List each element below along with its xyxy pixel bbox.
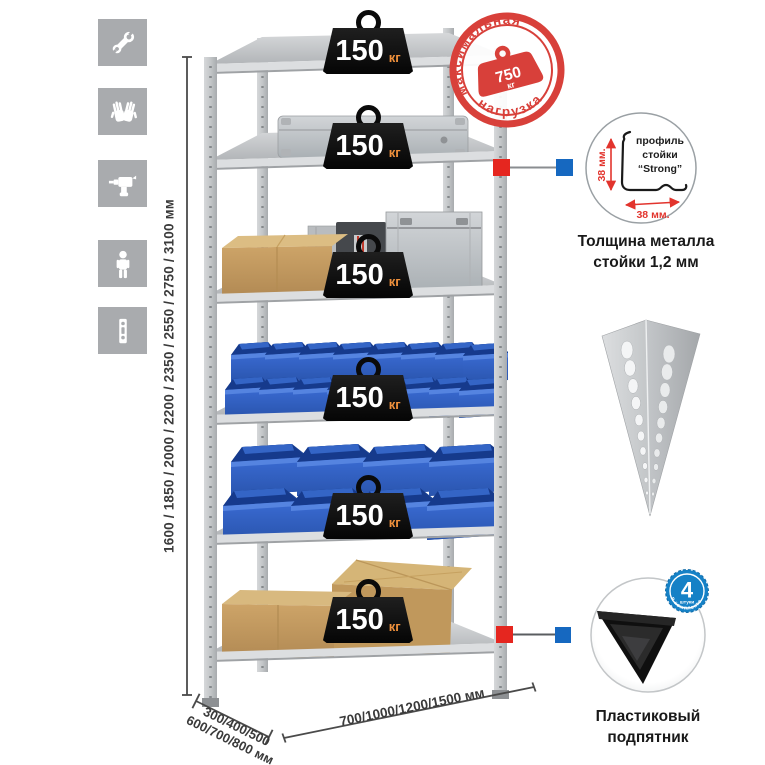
red-marker-square — [493, 159, 510, 176]
foot-caption-line1: Пластиковый — [596, 707, 701, 728]
load-value: 150 — [335, 502, 383, 531]
profile-dim-vertical: 38 мм. — [596, 148, 608, 181]
angle-post-image — [602, 320, 700, 516]
profile-label-line2: стойки — [636, 149, 684, 163]
load-value: 150 — [335, 261, 383, 290]
wrench-icon — [108, 28, 138, 58]
load-unit: кг — [389, 275, 401, 288]
profile-caption: Толщина металла стойки 1,2 мм — [578, 232, 715, 274]
shelf-load-badge: 150 кг — [323, 234, 413, 298]
load-value: 150 — [335, 132, 383, 161]
weight-body: 150 кг — [323, 252, 413, 298]
kit-count-badge: 4 штуки в комплекте — [666, 570, 709, 613]
blue-marker-square — [555, 627, 571, 643]
sidebar-icon-drill — [98, 160, 147, 207]
person-icon — [108, 249, 138, 279]
red-marker-square — [496, 626, 513, 643]
load-unit: кг — [389, 146, 401, 159]
shelf-load-badge: 150 кг — [323, 357, 413, 421]
drill-icon — [108, 169, 138, 199]
weight-body: 150 кг — [323, 597, 413, 643]
product-infographic: максимальная нагрузка 750 кг — [0, 0, 765, 765]
profile-label-line3: “Strong” — [636, 163, 684, 177]
load-value: 150 — [335, 606, 383, 635]
gloves-icon — [108, 97, 138, 127]
weight-body: 150 кг — [323, 493, 413, 539]
profile-caption-line1: Толщина металла — [578, 232, 715, 253]
sidebar-icon-gloves — [98, 88, 147, 135]
perforated-post-icon — [108, 316, 138, 346]
profile-caption-line2: стойки 1,2 мм — [578, 253, 715, 274]
load-unit: кг — [389, 620, 401, 633]
plastic-foot-circle: 4 штуки в комплекте — [591, 570, 709, 693]
shelf-load-badge: 150 кг — [323, 105, 413, 169]
weight-body: 150 кг — [323, 123, 413, 169]
shelf-load-badge: 150 кг — [323, 10, 413, 74]
load-value: 150 — [335, 384, 383, 413]
load-value: 150 — [335, 37, 383, 66]
sidebar-icon-perforated-post — [98, 307, 147, 354]
shelf-load-badge: 150 кг — [323, 579, 413, 643]
callout-bottom — [496, 626, 571, 643]
weight-body: 150 кг — [323, 375, 413, 421]
load-unit: кг — [389, 516, 401, 529]
height-dimension-label: 1600 / 1850 / 2000 / 2200 / 2350 / 2550 … — [162, 199, 177, 553]
weight-body: 150 кг — [323, 28, 413, 74]
sidebar-icon-wrench — [98, 19, 147, 66]
profile-label-line1: профиль — [636, 135, 684, 149]
sidebar-icon-person — [98, 240, 147, 287]
shelf-load-badge: 150 кг — [323, 475, 413, 539]
profile-label: профиль стойки “Strong” — [636, 135, 684, 177]
foot-caption: Пластиковый подпятник — [596, 707, 701, 749]
callout-top — [493, 159, 573, 176]
height-dimension-line — [182, 57, 192, 695]
load-unit: кг — [389, 398, 401, 411]
profile-dim-horizontal: 38 мм. — [636, 209, 669, 221]
load-unit: кг — [389, 51, 401, 64]
blue-marker-square — [556, 159, 573, 176]
badge-value: 4 — [681, 578, 694, 603]
foot-caption-line2: подпятник — [596, 728, 701, 749]
